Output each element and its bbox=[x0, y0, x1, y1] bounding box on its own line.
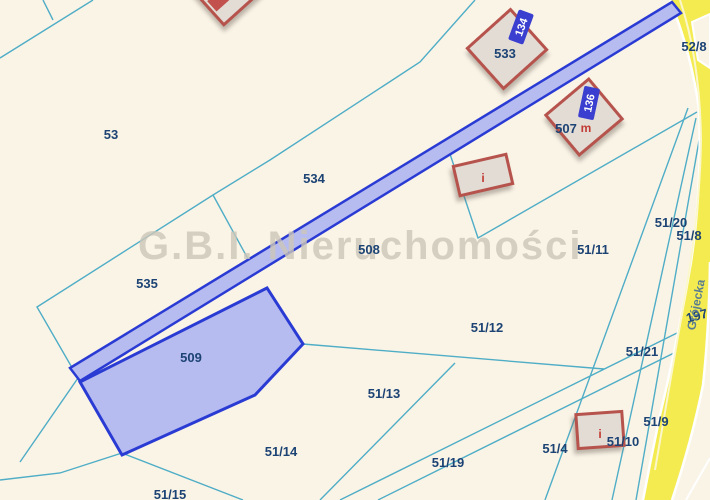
building-533 bbox=[467, 10, 546, 89]
cadastral-map[interactable]: G.B.I. Nieruchomości 53 533 534 535 508 … bbox=[0, 0, 710, 500]
map-geometry-layer bbox=[0, 0, 710, 500]
selected-road-strip[interactable] bbox=[70, 2, 681, 381]
roadside-line bbox=[686, 458, 710, 500]
building-outbuilding-south bbox=[576, 411, 624, 448]
road bbox=[643, 0, 710, 500]
building-outbuilding-mid bbox=[453, 154, 512, 195]
road-surface bbox=[643, 0, 710, 500]
building-507 bbox=[546, 79, 622, 155]
building-partial-top bbox=[189, 0, 267, 25]
